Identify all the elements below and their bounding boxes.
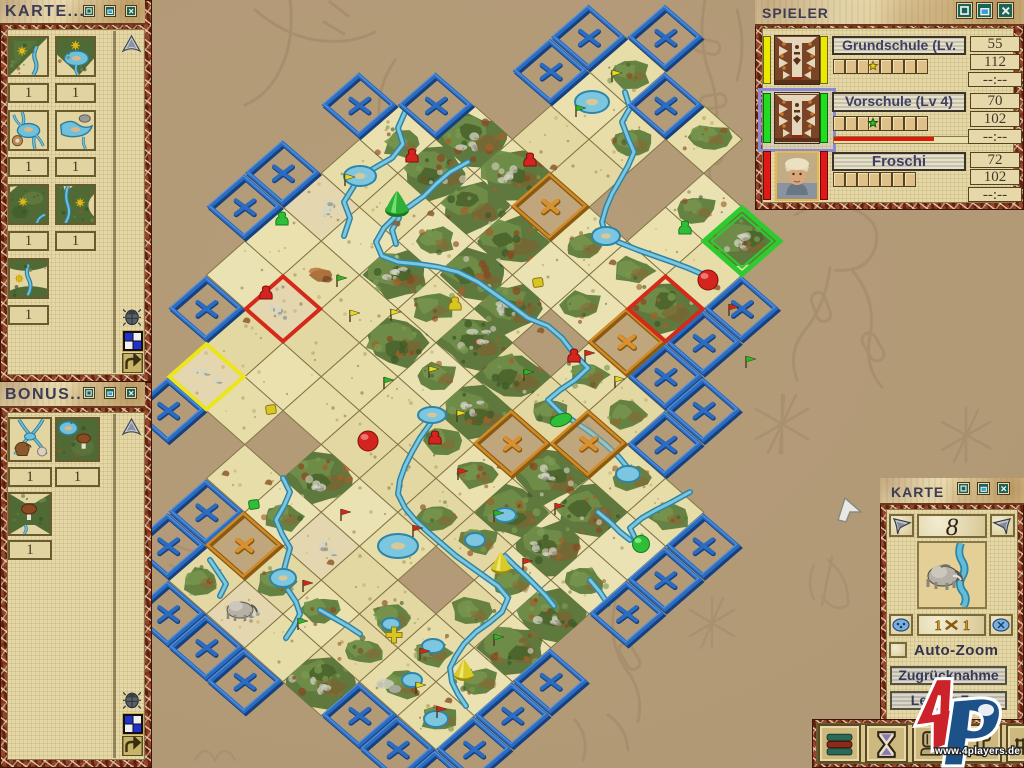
svg-text:www.4players.de: www.4players.de [934,746,1020,757]
svg-text:1: 1 [963,618,970,634]
svg-text:1: 1 [934,618,941,634]
